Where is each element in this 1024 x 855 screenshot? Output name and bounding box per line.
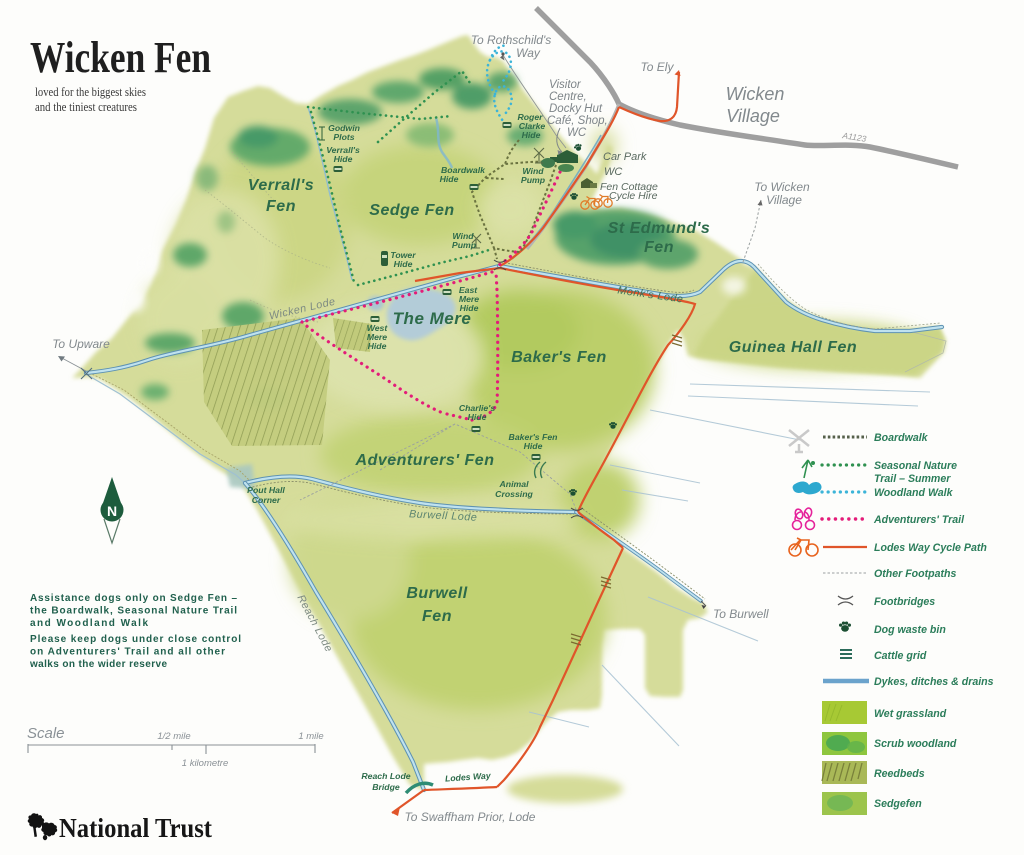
svg-text:1 mile: 1 mile bbox=[298, 731, 323, 742]
svg-text:Wet grassland: Wet grassland bbox=[874, 708, 947, 720]
svg-text:Verrall's: Verrall's bbox=[248, 177, 314, 194]
svg-text:Fen: Fen bbox=[422, 608, 452, 625]
svg-text:Reedbeds: Reedbeds bbox=[874, 768, 925, 780]
svg-text:1 kilometre: 1 kilometre bbox=[182, 758, 228, 769]
svg-text:Fen: Fen bbox=[644, 239, 674, 256]
svg-text:Scale: Scale bbox=[27, 725, 65, 742]
svg-text:Corner: Corner bbox=[252, 495, 281, 505]
svg-text:To Rothschild's: To Rothschild's bbox=[471, 33, 552, 47]
svg-text:Pout Hall: Pout Hall bbox=[247, 485, 285, 495]
svg-text:Scrub woodland: Scrub woodland bbox=[874, 738, 957, 750]
svg-text:Sedgefen: Sedgefen bbox=[874, 798, 922, 810]
svg-text:To Swaffham Prior, Lode: To Swaffham Prior, Lode bbox=[405, 810, 536, 824]
svg-text:National Trust: National Trust bbox=[59, 813, 212, 843]
svg-text:Car Park: Car Park bbox=[603, 151, 647, 163]
svg-text:Pump: Pump bbox=[521, 175, 546, 185]
svg-text:and the tiniest creatures: and the tiniest creatures bbox=[35, 100, 137, 114]
svg-text:loved for the biggest skies: loved for the biggest skies bbox=[35, 85, 146, 99]
svg-text:Fen: Fen bbox=[266, 198, 296, 215]
svg-text:Cattle grid: Cattle grid bbox=[874, 650, 927, 662]
svg-text:Village: Village bbox=[726, 106, 780, 126]
svg-text:Pump: Pump bbox=[452, 240, 477, 250]
svg-text:Hide: Hide bbox=[468, 412, 487, 422]
svg-text:Cycle Hire: Cycle Hire bbox=[609, 190, 658, 202]
svg-text:Wicken Fen: Wicken Fen bbox=[30, 33, 211, 82]
svg-text:Hide: Hide bbox=[368, 341, 387, 351]
svg-text:N: N bbox=[107, 503, 117, 519]
svg-text:Adventurers' Fen: Adventurers' Fen bbox=[355, 452, 495, 469]
svg-text:Lodes Way Cycle Path: Lodes Way Cycle Path bbox=[874, 542, 987, 554]
svg-text:Adventurers' Trail: Adventurers' Trail bbox=[873, 514, 965, 526]
svg-text:the Boardwalk, Seasonal Nature: the Boardwalk, Seasonal Nature Trail bbox=[30, 606, 237, 617]
svg-text:Hide: Hide bbox=[524, 441, 543, 451]
svg-text:Dykes, ditches & drains: Dykes, ditches & drains bbox=[874, 676, 994, 688]
svg-text:Hide: Hide bbox=[394, 259, 413, 269]
svg-text:Guinea Hall Fen: Guinea Hall Fen bbox=[729, 339, 857, 356]
svg-text:Hide: Hide bbox=[460, 303, 479, 313]
svg-text:and Woodland Walk: and Woodland Walk bbox=[30, 618, 148, 629]
svg-text:A1123: A1123 bbox=[841, 130, 867, 144]
svg-text:Lodes Way: Lodes Way bbox=[445, 770, 492, 783]
svg-text:Crossing: Crossing bbox=[495, 489, 533, 499]
svg-text:Footbridges: Footbridges bbox=[874, 596, 935, 608]
svg-text:Café, Shop,: Café, Shop, bbox=[547, 115, 608, 127]
svg-text:Docky Hut: Docky Hut bbox=[549, 103, 603, 115]
svg-text:To Upware: To Upware bbox=[52, 337, 110, 351]
svg-text:Other Footpaths: Other Footpaths bbox=[874, 568, 956, 580]
svg-text:Assistance dogs only on Sedge: Assistance dogs only on Sedge Fen – bbox=[30, 593, 237, 604]
svg-text:Centre,: Centre, bbox=[549, 91, 587, 103]
svg-text:Village: Village bbox=[766, 193, 802, 207]
svg-text:Way: Way bbox=[516, 46, 541, 60]
svg-text:Seasonal Nature: Seasonal Nature bbox=[874, 460, 957, 472]
svg-text:Bridge: Bridge bbox=[372, 782, 400, 792]
svg-text:1/2 mile: 1/2 mile bbox=[157, 731, 190, 742]
svg-text:To Burwell: To Burwell bbox=[713, 607, 769, 621]
svg-text:Visitor: Visitor bbox=[549, 79, 582, 91]
svg-text:St Edmund's: St Edmund's bbox=[608, 220, 711, 237]
svg-text:To Wicken: To Wicken bbox=[754, 180, 810, 194]
svg-text:Woodland Walk: Woodland Walk bbox=[874, 487, 954, 499]
svg-text:Reach Lode: Reach Lode bbox=[361, 771, 410, 781]
svg-text:Boardwalk: Boardwalk bbox=[874, 432, 929, 444]
svg-text:WC: WC bbox=[567, 127, 587, 139]
svg-text:Hide: Hide bbox=[522, 130, 541, 140]
svg-text:on Adventurers' Trail and all: on Adventurers' Trail and all other bbox=[30, 647, 225, 658]
svg-text:Plots: Plots bbox=[333, 132, 354, 142]
svg-text:Burwell: Burwell bbox=[406, 585, 467, 602]
svg-text:Baker's Fen: Baker's Fen bbox=[511, 349, 607, 366]
svg-text:Trail – Summer: Trail – Summer bbox=[874, 473, 951, 485]
svg-text:Dog waste bin: Dog waste bin bbox=[874, 624, 946, 636]
svg-text:To Ely: To Ely bbox=[641, 60, 675, 74]
svg-text:Wicken: Wicken bbox=[726, 84, 785, 104]
svg-text:Animal: Animal bbox=[499, 479, 530, 489]
svg-text:Sedge Fen: Sedge Fen bbox=[369, 202, 454, 219]
svg-text:walks on the wider reserve: walks on the wider reserve bbox=[29, 659, 167, 670]
svg-text:WC: WC bbox=[604, 166, 622, 178]
svg-text:Hide: Hide bbox=[334, 154, 353, 164]
svg-text:Hide: Hide bbox=[440, 174, 459, 184]
svg-text:Please keep dogs under close c: Please keep dogs under close control bbox=[30, 634, 241, 645]
